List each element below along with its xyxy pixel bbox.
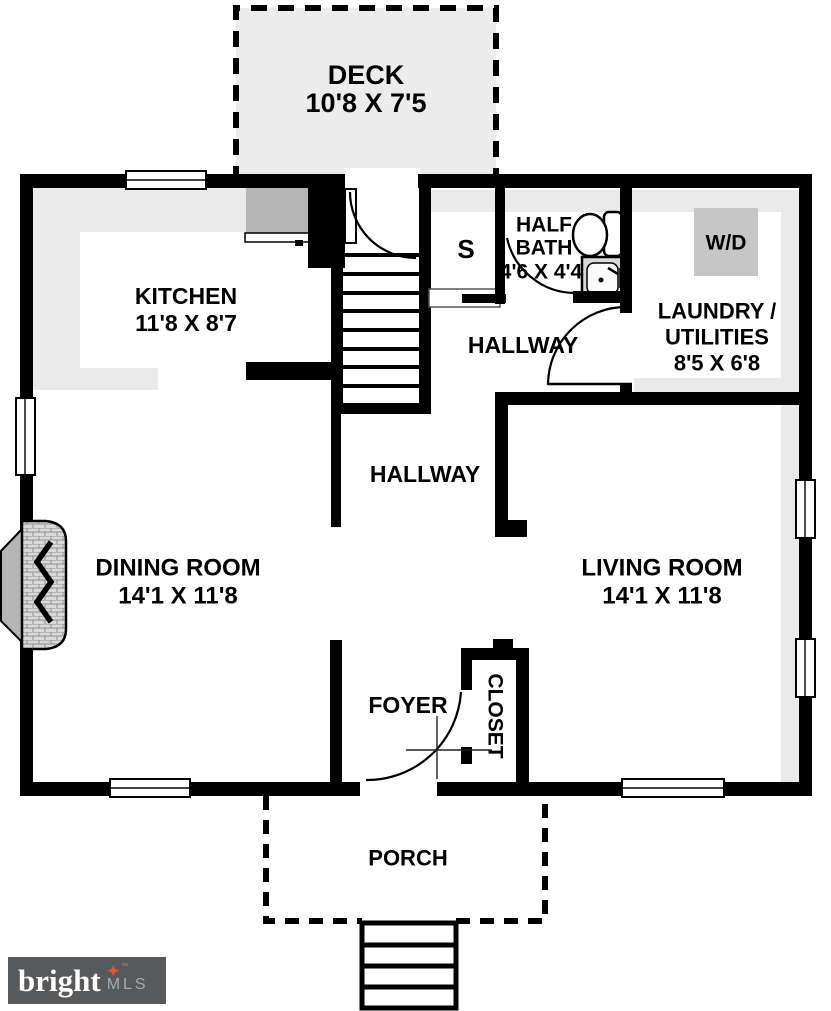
porch-outline-right bbox=[456, 796, 545, 921]
brightmls-trademark: ™ bbox=[121, 963, 128, 970]
kitchen-dims: 11'8 X 8'7 bbox=[135, 310, 237, 336]
deck-door-swing-arc bbox=[350, 192, 416, 258]
laundry-bottom-shading bbox=[634, 378, 781, 392]
wall-kitchen-stub bbox=[246, 362, 332, 380]
brightmls-brand-text: bright bbox=[18, 965, 101, 996]
living-right-shading bbox=[781, 405, 799, 782]
wall-dining-divider bbox=[331, 414, 341, 527]
closet-label: CLOSET bbox=[484, 673, 507, 758]
kitchen-counter-left bbox=[33, 232, 80, 390]
toilet-bowl bbox=[573, 214, 607, 256]
toilet-icon bbox=[573, 212, 622, 256]
stove-icon bbox=[246, 188, 308, 233]
living-room-dims: 14'1 X 11'8 bbox=[602, 583, 722, 610]
wall-stair-bottom bbox=[331, 403, 431, 414]
deck-label: DECK bbox=[328, 60, 405, 90]
wall-kitchen-stair bbox=[308, 188, 345, 268]
wall-closet-left-upper bbox=[461, 648, 472, 690]
kitchen-counter-top bbox=[33, 188, 246, 232]
wall-foyer-left bbox=[330, 640, 342, 782]
kitchen-label: KITCHEN bbox=[135, 283, 237, 309]
sink-drain bbox=[599, 278, 604, 283]
brightmls-watermark: bright ✦ ™ MLS bbox=[8, 957, 166, 1004]
wall-laundry-left bbox=[620, 188, 632, 313]
floor-plan: DECK 10'8 X 7'5 KITCHEN 11'8 X 8'7 S HAL… bbox=[0, 0, 831, 1011]
wall-closet-notch bbox=[493, 639, 513, 649]
wall-living-left-foot bbox=[495, 520, 527, 537]
floor-plan-drawing: DECK 10'8 X 7'5 KITCHEN 11'8 X 8'7 S HAL… bbox=[0, 0, 831, 1011]
laundry-dims: 8'5 X 6'8 bbox=[674, 351, 760, 376]
deck-dims: 10'8 X 7'5 bbox=[306, 88, 427, 118]
wall-stair-left bbox=[331, 268, 343, 414]
wall-top-right bbox=[418, 174, 812, 188]
porch-label: PORCH bbox=[368, 846, 447, 871]
stair-closet-door-stub bbox=[495, 287, 505, 304]
fireplace-hearth bbox=[1, 529, 22, 642]
kitchen-appliance bbox=[245, 188, 310, 246]
dining-room-dims: 14'1 X 11'8 bbox=[118, 583, 238, 610]
laundry-label-line2: UTILITIES bbox=[665, 325, 769, 350]
wall-closet-right bbox=[516, 648, 529, 782]
deck-door-opening bbox=[344, 168, 420, 190]
laundry-label-line1: LAUNDRY / bbox=[658, 299, 777, 324]
halfbath-label-line2: BATH bbox=[516, 237, 573, 260]
dining-room-label: DINING ROOM bbox=[95, 555, 260, 582]
porch-outline-left bbox=[266, 796, 362, 921]
washer-dryer-label: W/D bbox=[706, 232, 747, 255]
porch bbox=[266, 796, 545, 1008]
wall-living-left bbox=[495, 405, 508, 537]
fireplace-brick bbox=[22, 521, 66, 649]
living-room-label: LIVING ROOM bbox=[581, 555, 742, 582]
stove-knob bbox=[295, 240, 303, 246]
hallway-upper-label: HALLWAY bbox=[468, 332, 578, 358]
brightmls-star-icon: ✦ bbox=[107, 962, 120, 980]
fireplace-icon bbox=[1, 521, 66, 649]
halfbath-dims: 4'6 X 4'4 bbox=[500, 261, 583, 284]
kitchen-counter-bottom bbox=[33, 368, 158, 390]
hallway-lower-label: HALLWAY bbox=[370, 461, 480, 487]
laundry-right-shading bbox=[781, 212, 799, 392]
stair-closet-label: S bbox=[457, 234, 474, 264]
foyer-label: FOYER bbox=[368, 692, 448, 718]
wall-living-top bbox=[495, 392, 812, 405]
halfbath-label-line1: HALF bbox=[516, 214, 572, 237]
staircase bbox=[343, 255, 419, 386]
wall-left bbox=[20, 174, 33, 796]
